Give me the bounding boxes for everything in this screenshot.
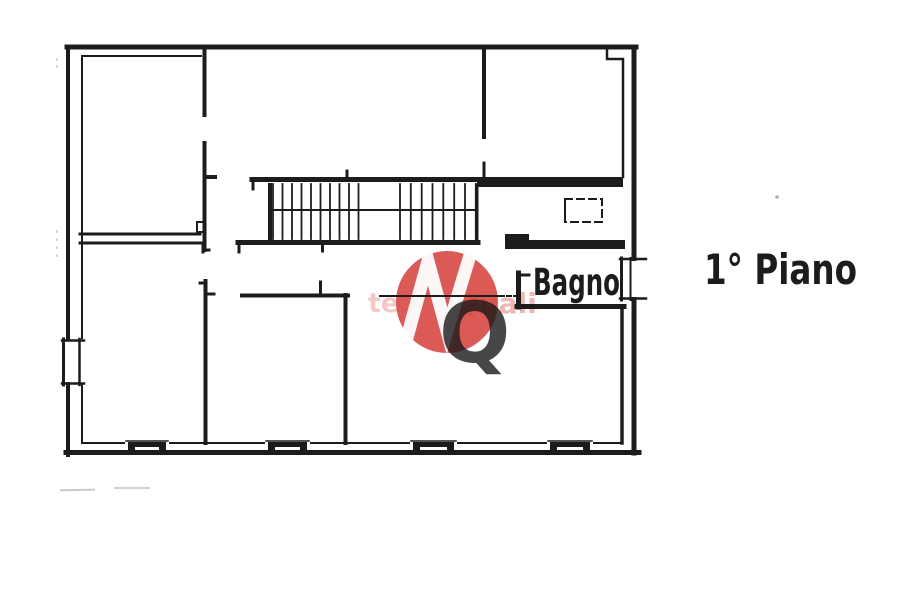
watermark-text-left: te xyxy=(368,288,399,319)
window-bottom-2 xyxy=(266,441,309,451)
window-right xyxy=(620,258,646,300)
appliance-dashed-box xyxy=(565,199,602,222)
plan-ink xyxy=(60,47,646,455)
window-bottom-3 xyxy=(411,441,456,451)
window-left xyxy=(60,339,86,385)
floor-plan-image: te Quali xyxy=(0,0,900,600)
window-bottom-4 xyxy=(548,441,592,451)
top-left-room-walls xyxy=(80,47,215,252)
stair-treads xyxy=(273,184,476,239)
floor-label: 1° Piano xyxy=(704,245,857,294)
window-bottom-1 xyxy=(126,441,168,451)
scanned-floorplan-page: te Quali xyxy=(0,0,900,600)
bathroom-label: Bagno xyxy=(533,261,620,304)
watermark-letter-q: Q xyxy=(439,284,510,382)
exterior-walls xyxy=(66,47,639,455)
